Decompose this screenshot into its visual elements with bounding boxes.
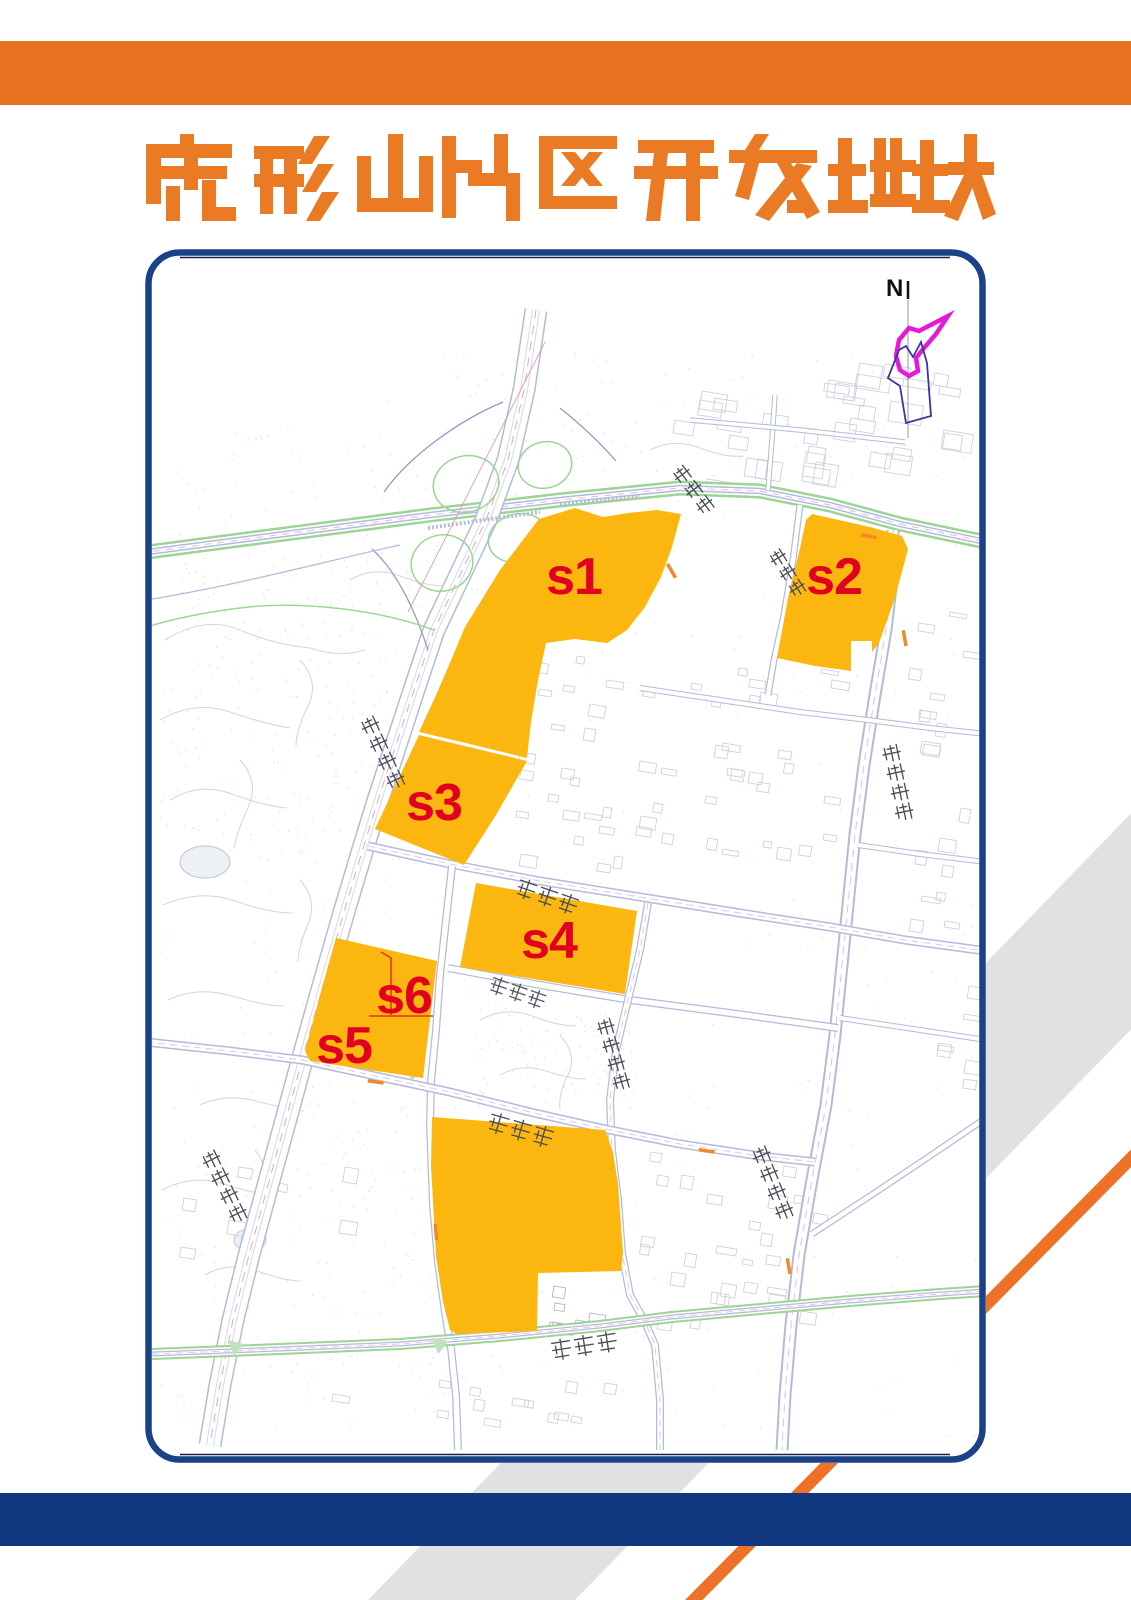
svg-text:s3: s3 [406,774,462,832]
svg-text:s2: s2 [806,548,862,606]
svg-text:s4: s4 [521,912,578,970]
svg-text:s6: s6 [376,967,432,1025]
svg-text:s5: s5 [316,1017,372,1075]
svg-text:s1: s1 [546,548,602,606]
svg-text:N: N [886,275,903,302]
